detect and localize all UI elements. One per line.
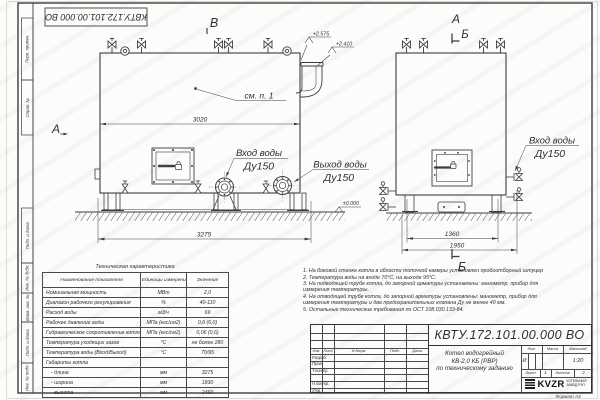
dim-3020-label: 3020 xyxy=(193,117,208,124)
elev-2410-label: +2.410 xyxy=(336,42,352,48)
product-title-line1: Котел водогрейный xyxy=(428,350,521,358)
row-razrab: Разраб. xyxy=(312,355,333,361)
margin-label-podp-data-2: Подп. и дата xyxy=(22,322,34,363)
row-unit: м3/ч xyxy=(141,308,187,318)
row-unit: °С xyxy=(141,338,187,348)
row-name: Рабочее давление воды xyxy=(43,318,141,328)
mass-header: Масса xyxy=(542,346,563,353)
product-title: Котел водогрейный КВ-2,0 КБ (РВР) по тех… xyxy=(428,350,521,373)
technical-notes: 1. На боковой стенке котла в области топ… xyxy=(303,268,557,313)
note-5: 5. Остальные технические требования по О… xyxy=(303,307,557,313)
section-label-b-top: Б xyxy=(461,29,469,41)
table-row: Рабочее давление водыМПа (кгс/см2)0,6 (6… xyxy=(43,318,229,328)
row-value: 1830 xyxy=(187,378,229,388)
sheets-label: Листов xyxy=(551,369,574,377)
spec-table: Наименование показателя Единицы измерени… xyxy=(42,272,229,398)
note-2: 2. Температура воды на входе 70°С, на вы… xyxy=(303,275,557,281)
row-name: Температура уходящих газов xyxy=(43,338,141,348)
format-label: Формат А3 xyxy=(544,394,592,400)
row-value: не более 280 xyxy=(187,338,229,348)
row-name: Гидравлическое сопротивление котла xyxy=(43,328,141,338)
row-value: 2460 xyxy=(187,388,229,398)
furnace-door-side xyxy=(432,150,472,186)
margin-label-inv-dubl: Инв. № дубл. xyxy=(22,263,34,293)
title-block: Изм. Лист N докум. Подп. Дата Разраб. Пр… xyxy=(310,324,592,393)
section-b-marks xyxy=(452,34,460,260)
row-name: Расход воды xyxy=(43,308,141,318)
note-4: 4. На отводящей трубе котла, до запорной… xyxy=(303,294,557,306)
margin-label-perv-primen: Перв. примен. xyxy=(22,18,34,80)
spec-table-header: Наименование показателя Единицы измерени… xyxy=(43,273,229,288)
row-unit: МПа (кгс/см2) xyxy=(141,328,187,338)
product-title-line3: по техническому заданию xyxy=(428,365,521,373)
view-label-a-left: А xyxy=(51,122,60,136)
row-unit: мм xyxy=(141,378,187,388)
side-inlet-valve xyxy=(506,168,523,181)
row-name: Номинальная мощность xyxy=(43,288,141,298)
row-value: 2,0 xyxy=(187,288,229,298)
row-unit: МВт xyxy=(141,288,187,298)
row-value: 70/95 xyxy=(187,348,229,358)
table-row: Гидравлическое сопротивление котлаМПа (к… xyxy=(43,328,229,338)
note-3: 3. На подводящей трубе котла, до запорно… xyxy=(303,281,557,293)
header-doc: N докум. xyxy=(334,348,384,354)
col-unit-header: Единицы измерения xyxy=(141,273,187,288)
elev-2575-label: +2.575 xyxy=(313,32,329,38)
callout-see-item: см. п. 1 xyxy=(245,91,274,101)
row-value xyxy=(187,358,229,368)
support-legs-side xyxy=(402,195,505,212)
inlet-dn-front: Ду150 xyxy=(243,161,274,173)
scale-value: 1:20 xyxy=(563,353,593,369)
view-label-v: В xyxy=(210,16,218,30)
note-1: 1. На боковой стенке котла в области топ… xyxy=(303,268,557,274)
row-name: - ширина xyxy=(43,378,141,388)
row-name: Габариты котла xyxy=(43,358,141,368)
ground-hatching-side xyxy=(386,213,532,221)
table-row: Габариты котла xyxy=(43,358,229,368)
sheet-label: Лист xyxy=(521,369,540,377)
view-a-left-mark xyxy=(60,133,68,136)
view-label-a-top: А xyxy=(451,12,460,26)
row-unit: МПа (кгс/см2) xyxy=(141,318,187,328)
table-row: Расход водым3/ч69 xyxy=(43,308,229,318)
elev-zero-label: ±0.000 xyxy=(343,201,359,207)
margin-label-vzam-inv: Взам. инв. № xyxy=(22,293,34,322)
dim-1360-label: 1360 xyxy=(445,231,460,238)
outlet-label-front: Выход воды xyxy=(313,160,366,171)
dim-1950-label: 1950 xyxy=(450,243,465,250)
row-unit: мм xyxy=(141,388,187,398)
table-row: Температура воды (Вход/Выход)°С70/95 xyxy=(43,348,229,358)
row-tkontr: Т.контр. xyxy=(312,368,333,374)
front-view xyxy=(60,28,369,243)
row-value: 3275 xyxy=(187,368,229,378)
row-name: Диапазон рабочего регулирования xyxy=(43,298,141,308)
table-row: Диапазон рабочего регулирования%40-110 xyxy=(43,298,229,308)
margin-label-sprav-no: Справ. № xyxy=(22,80,34,135)
header-date: Дата xyxy=(406,348,428,354)
kvzr-logo-icon xyxy=(525,379,535,389)
furnace-door-front xyxy=(152,148,194,184)
logo-sub-line2: ЗАВОД РЭП xyxy=(567,384,587,388)
inlet-label-front: Вход воды xyxy=(236,148,282,159)
table-row: - высотамм2460 xyxy=(43,388,229,398)
table-row: Температура уходящих газов°Сне более 280 xyxy=(43,338,229,348)
row-value: 0,06 (0,6) xyxy=(187,328,229,338)
lock-icon xyxy=(176,162,182,170)
header-list: Лист xyxy=(322,348,334,354)
header-sign: Подп. xyxy=(384,348,406,354)
support-skirt-front xyxy=(101,193,309,211)
product-title-line2: КВ-2,0 КБ (РВР) xyxy=(428,358,521,366)
table-row: Номинальная мощностьМВт2,0 xyxy=(43,288,229,298)
margin-label-podp-data-1: Подп. и дата xyxy=(22,208,34,263)
col-value-header: Значение xyxy=(187,273,229,288)
table-row: - ширинамм1830 xyxy=(43,378,229,388)
dim-3275-label: 3275 xyxy=(197,232,212,239)
doc-number-stamp: КВТУ.172.101.00.000 ВО xyxy=(45,8,147,26)
spec-table-title: Техническая характеристика xyxy=(42,263,228,272)
row-name: - высота xyxy=(43,388,141,398)
water-outlet-flange-front xyxy=(274,177,292,195)
row-utv: Утв. xyxy=(312,388,333,394)
drawing-sheet: В А Б А Б см. п. 1 3020 3275 1360 1950 +… xyxy=(0,0,600,400)
table-row: - длинамм3275 xyxy=(43,368,229,378)
row-value: 0,6 (6,0) xyxy=(187,318,229,328)
row-prov: Пров. xyxy=(312,361,333,367)
company-logo: KVZR КОТЕЛЬНЫЙ ЗАВОД РЭП xyxy=(521,377,591,391)
doc-number: КВТУ.172.101.00.000 ВО xyxy=(428,325,591,346)
boiler-body-side xyxy=(396,53,506,195)
row-value: 69 xyxy=(187,308,229,318)
row-name: - длина xyxy=(43,368,141,378)
row-value: 40-110 xyxy=(187,298,229,308)
lit-header: Лит xyxy=(521,346,542,353)
elevation-marks xyxy=(301,37,361,212)
water-inlet-flange-front xyxy=(216,178,234,196)
inlet-label-side: Вход воды xyxy=(529,136,575,147)
lit-value: И xyxy=(521,353,528,369)
ground-hatching-front xyxy=(75,212,345,221)
sheet-value: 1 xyxy=(540,369,551,377)
inlet-dn-side: Ду150 xyxy=(534,148,565,160)
sheets-value: 2 xyxy=(574,369,593,377)
row-unit: мм xyxy=(141,368,187,378)
outlet-dn-front: Ду150 xyxy=(323,172,354,184)
row-unit: °С xyxy=(141,348,187,358)
header-izm: Изм. xyxy=(311,348,322,354)
row-name: Температура воды (Вход/Выход) xyxy=(43,348,141,358)
row-nkontr: Н.контр. xyxy=(312,381,333,387)
kvzr-logo-text: KVZR xyxy=(537,379,564,390)
margin-label-inv-podl: Инв. № подл. xyxy=(22,363,34,393)
row-unit xyxy=(141,358,187,368)
col-name-header: Наименование показателя xyxy=(43,273,141,288)
lock-icon xyxy=(451,161,457,168)
row-unit: % xyxy=(141,298,187,308)
scale-header: Масштаб xyxy=(563,346,593,353)
